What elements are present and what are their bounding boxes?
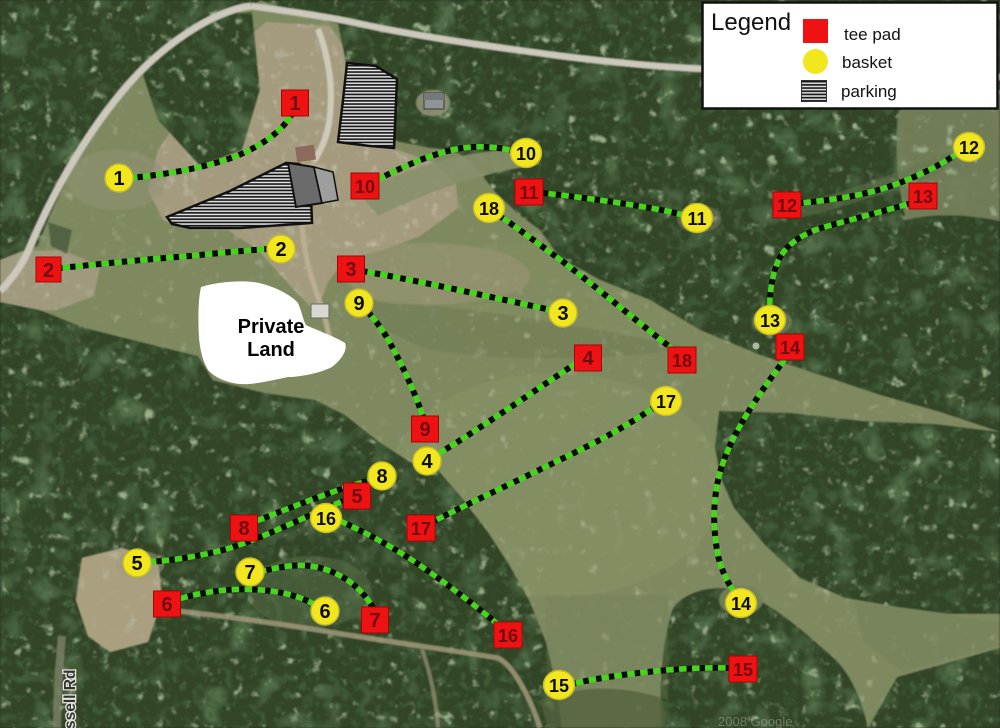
- svg-text:13: 13: [913, 187, 933, 207]
- svg-text:15: 15: [733, 660, 753, 680]
- svg-text:2: 2: [275, 239, 286, 261]
- svg-text:Land: Land: [247, 339, 295, 361]
- svg-text:12: 12: [777, 196, 797, 216]
- svg-text:parking: parking: [841, 82, 897, 101]
- svg-text:3: 3: [345, 259, 356, 281]
- svg-text:15: 15: [549, 676, 569, 696]
- svg-text:5: 5: [351, 486, 362, 508]
- svg-text:4: 4: [582, 348, 594, 370]
- svg-text:16: 16: [498, 626, 518, 646]
- svg-text:17: 17: [411, 519, 431, 539]
- svg-text:ssell Rd: ssell Rd: [62, 670, 79, 728]
- svg-text:7: 7: [369, 610, 380, 632]
- svg-text:17: 17: [656, 392, 676, 412]
- svg-text:1: 1: [113, 168, 124, 190]
- svg-text:Private: Private: [238, 316, 305, 338]
- svg-text:9: 9: [353, 293, 364, 315]
- svg-text:10: 10: [516, 144, 536, 164]
- svg-text:12: 12: [959, 138, 979, 158]
- svg-text:11: 11: [519, 183, 538, 203]
- svg-text:2: 2: [43, 260, 54, 282]
- svg-text:16: 16: [316, 509, 336, 529]
- svg-text:5: 5: [131, 553, 142, 575]
- svg-text:14: 14: [780, 338, 800, 358]
- svg-text:18: 18: [479, 199, 499, 219]
- svg-text:13: 13: [760, 311, 780, 331]
- svg-text:10: 10: [355, 177, 375, 197]
- svg-text:11: 11: [687, 209, 706, 229]
- svg-text:9: 9: [419, 419, 430, 441]
- svg-text:basket: basket: [842, 53, 892, 72]
- svg-text:1: 1: [289, 93, 300, 115]
- svg-text:tee pad: tee pad: [844, 25, 901, 44]
- svg-text:8: 8: [238, 518, 249, 540]
- svg-text:4: 4: [421, 451, 433, 473]
- svg-text:Legend: Legend: [711, 9, 791, 36]
- svg-text:8: 8: [376, 466, 387, 488]
- svg-text:6: 6: [161, 594, 172, 616]
- svg-text:2008 Google: 2008 Google: [718, 714, 792, 728]
- svg-text:7: 7: [244, 562, 255, 584]
- svg-text:14: 14: [731, 594, 751, 614]
- svg-text:18: 18: [672, 351, 692, 371]
- svg-text:3: 3: [557, 303, 568, 325]
- svg-text:6: 6: [319, 601, 330, 623]
